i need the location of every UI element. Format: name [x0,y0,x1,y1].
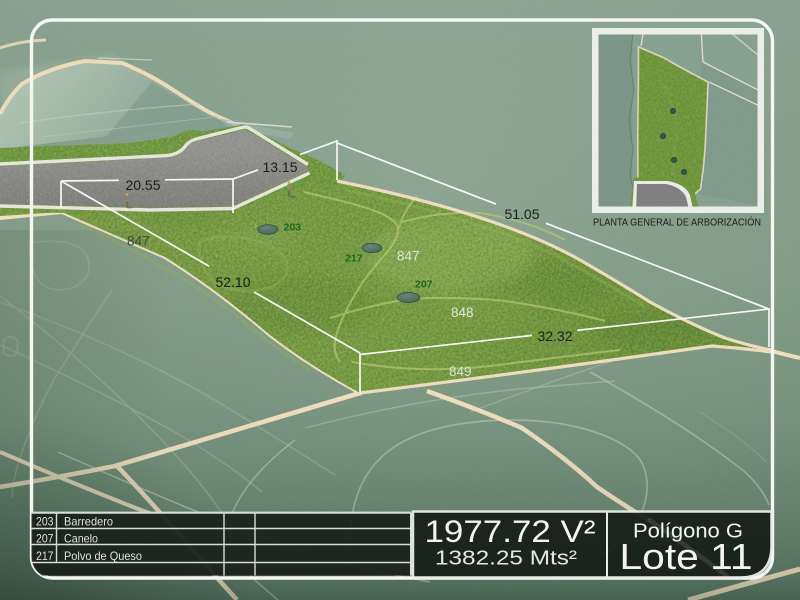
svg-text:Polvo de Queso: Polvo de Queso [64,549,142,563]
svg-text:Barredero: Barredero [64,515,113,529]
svg-text:217: 217 [36,549,54,563]
svg-text:1382.25 Mts²: 1382.25 Mts² [435,548,577,570]
svg-text:207: 207 [36,532,54,546]
svg-text:1977.72 V²: 1977.72 V² [425,513,596,549]
svg-text:Lote 11: Lote 11 [620,536,753,577]
svg-text:203: 203 [36,515,54,529]
svg-text:Canelo: Canelo [64,532,98,546]
